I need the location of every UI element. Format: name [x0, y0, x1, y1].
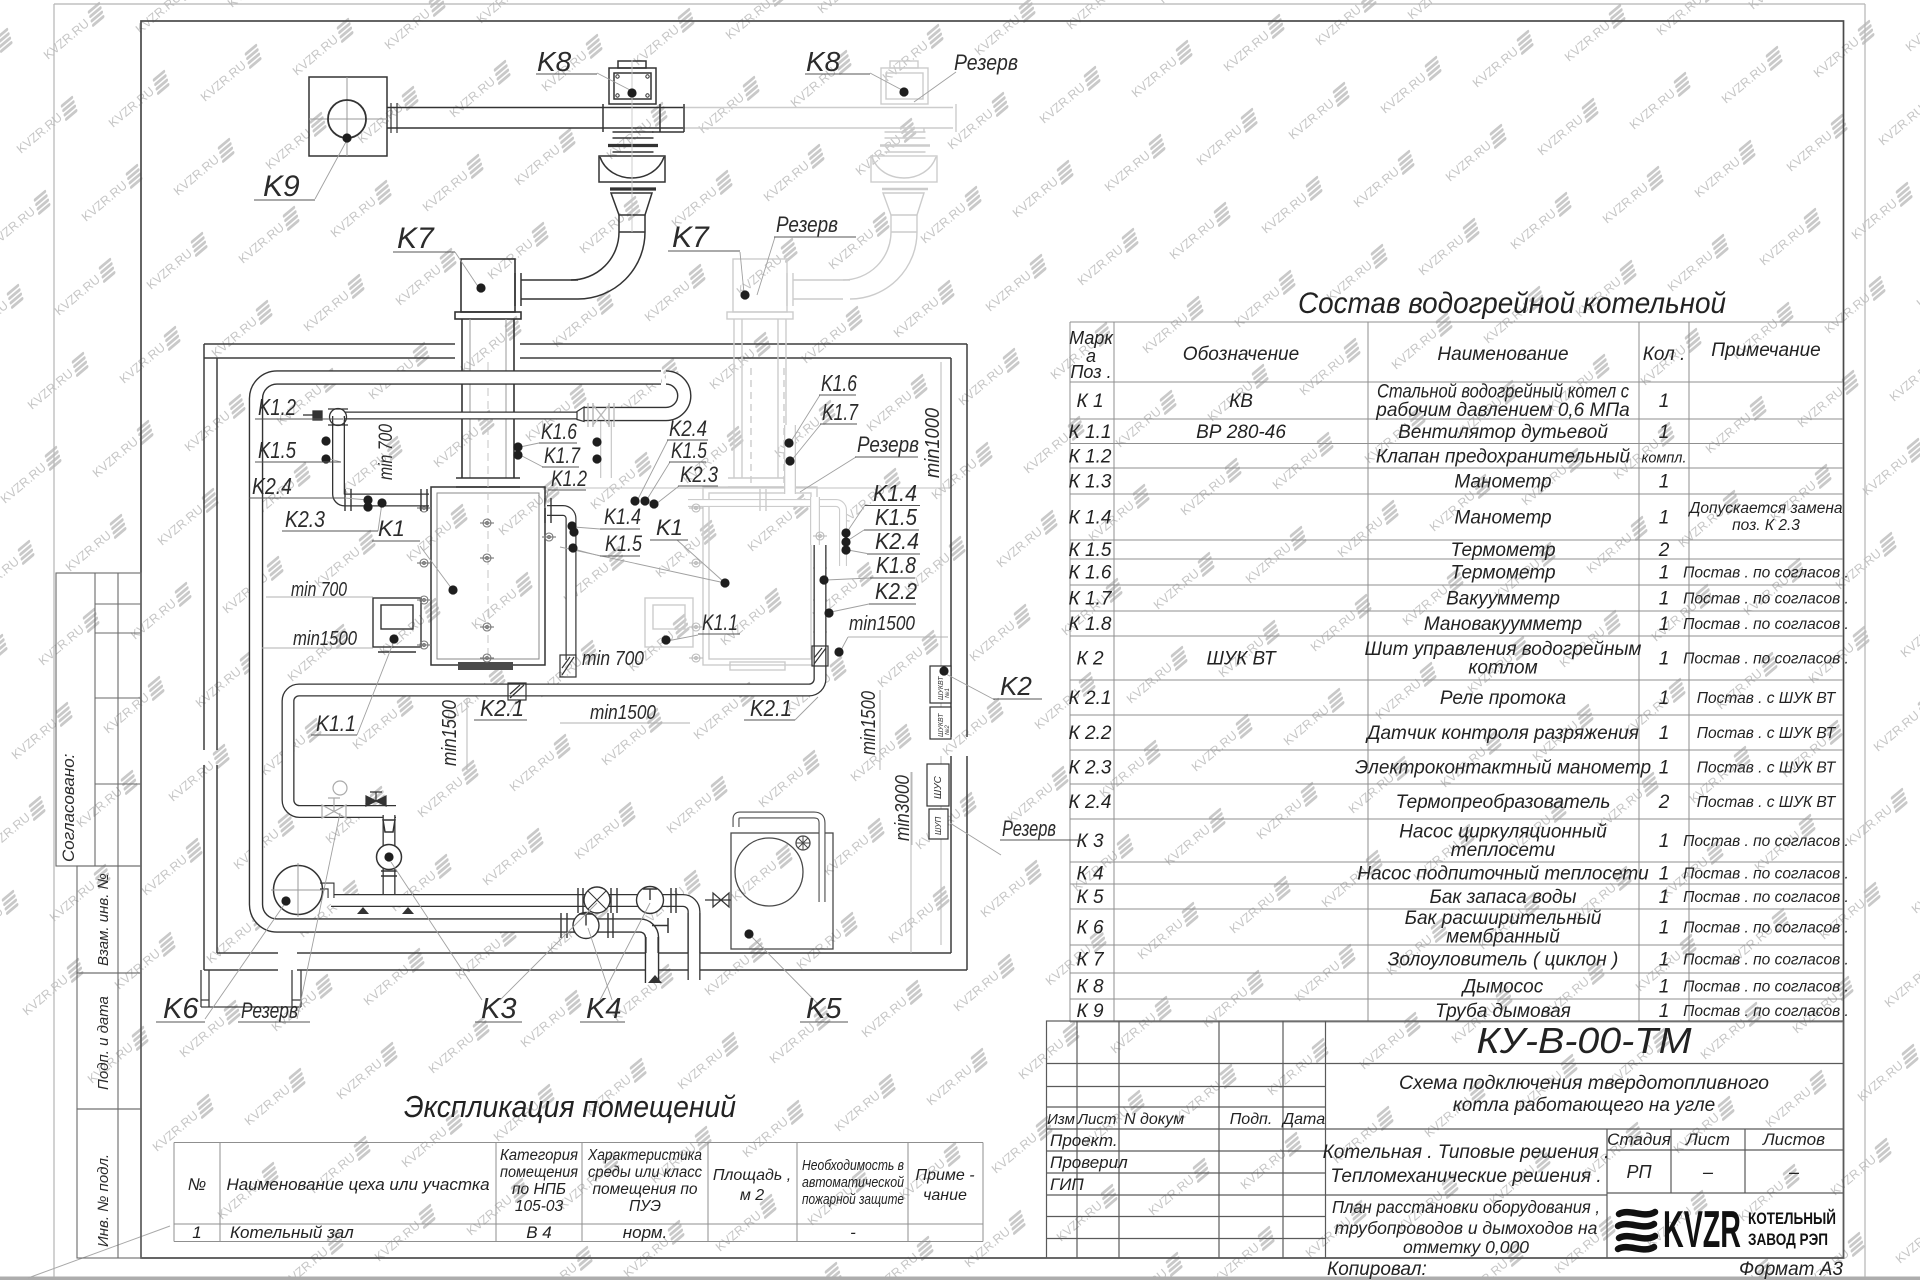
svg-text:В 4: В 4 — [526, 1223, 552, 1242]
svg-text:К 1.5: К 1.5 — [1069, 540, 1112, 561]
svg-text:K1.6: K1.6 — [821, 370, 857, 396]
svg-text:min3000: min3000 — [892, 775, 914, 841]
svg-text:К 2: К 2 — [1076, 649, 1103, 670]
svg-text:Дата: Дата — [1281, 1111, 1325, 1128]
svg-text:КУ-В-00-ТМ: КУ-В-00-ТМ — [1477, 1020, 1692, 1061]
svg-text:Проверил: Проверил — [1050, 1153, 1128, 1172]
svg-text:компл.: компл. — [1641, 450, 1686, 466]
svg-text:К 2.2: К 2.2 — [1069, 723, 1112, 744]
svg-text:K2: K2 — [1000, 671, 1032, 701]
svg-text:K1.5: K1.5 — [671, 438, 708, 463]
svg-text:Труба дымовая: Труба дымовая — [1435, 1001, 1571, 1022]
svg-text:2: 2 — [1658, 540, 1670, 561]
svg-text:min1500: min1500 — [590, 702, 656, 724]
svg-text:Резерв: Резерв — [1002, 816, 1056, 841]
svg-text:Наименование: Наименование — [1437, 344, 1568, 365]
svg-text:1: 1 — [1659, 422, 1670, 443]
svg-text:1: 1 — [1659, 758, 1670, 779]
svg-text:К 4: К 4 — [1076, 864, 1103, 885]
svg-text:1: 1 — [1659, 977, 1670, 998]
svg-text:1: 1 — [1659, 472, 1670, 493]
svg-text:Электроконтактный манометр: Электроконтактный манометр — [1355, 758, 1651, 779]
svg-text:пожарной защите: пожарной защите — [802, 1191, 904, 1208]
svg-text:K2.3: K2.3 — [680, 462, 719, 487]
svg-text:№: № — [188, 1175, 206, 1194]
svg-text:Постав . по согласов .: Постав . по согласов . — [1683, 920, 1849, 937]
svg-text:ШУК ВТ: ШУК ВТ — [1206, 649, 1277, 670]
svg-text:min1500: min1500 — [849, 613, 915, 635]
svg-text:Золоуловитель ( циклон ): Золоуловитель ( циклон ) — [1388, 950, 1619, 971]
svg-text:min 700: min 700 — [582, 648, 644, 670]
svg-text:Подп.: Подп. — [1230, 1111, 1273, 1128]
svg-text:теплосети: теплосети — [1451, 840, 1556, 861]
svg-text:1: 1 — [1659, 589, 1670, 610]
svg-text:норм.: норм. — [623, 1223, 667, 1242]
svg-text:К 1.3: К 1.3 — [1069, 472, 1112, 493]
svg-text:К 1.4: К 1.4 — [1069, 508, 1112, 529]
svg-text:чание: чание — [923, 1187, 967, 1204]
svg-text:Термопреобразователь: Термопреобразователь — [1396, 792, 1611, 813]
svg-text:K1.4: K1.4 — [604, 504, 641, 529]
svg-text:K2.4: K2.4 — [252, 473, 292, 499]
svg-text:–: – — [1702, 1162, 1714, 1182]
svg-text:Резерв: Резерв — [857, 432, 919, 457]
svg-text:K1: K1 — [656, 515, 683, 540]
svg-text:–: – — [1788, 1162, 1800, 1182]
svg-text:К 8: К 8 — [1076, 977, 1103, 998]
svg-text:Инв. № подл.: Инв. № подл. — [95, 1154, 112, 1247]
svg-text:1: 1 — [1659, 649, 1670, 670]
svg-text:Постав . по согласов .: Постав . по согласов . — [1683, 866, 1849, 883]
svg-text:1: 1 — [1659, 864, 1670, 885]
svg-text:отметку 0,000: отметку 0,000 — [1403, 1237, 1529, 1257]
svg-text:Тепломеханические решения .: Тепломеханические решения . — [1330, 1166, 1601, 1187]
svg-text:Бак запаса воды: Бак запаса воды — [1429, 887, 1576, 908]
svg-text:Постав . по согласов .: Постав . по согласов . — [1683, 651, 1849, 668]
svg-text:КВ: КВ — [1229, 391, 1253, 412]
svg-text:K1.6: K1.6 — [541, 419, 578, 444]
svg-text:Необходимость в: Необходимость в — [802, 1157, 904, 1174]
svg-text:План расстановки оборудования: План расстановки оборудования , — [1332, 1197, 1600, 1217]
svg-text:Экспликация помещений: Экспликация помещений — [404, 1089, 736, 1124]
svg-text:Примечание: Примечание — [1711, 340, 1820, 361]
svg-text:К 1.2: К 1.2 — [1069, 446, 1112, 467]
svg-text:по НПБ: по НПБ — [512, 1181, 566, 1198]
svg-text:Датчик контроля разряжения: Датчик контроля разряжения — [1365, 723, 1639, 744]
svg-text:105-03: 105-03 — [515, 1198, 564, 1215]
svg-text:Реле протока: Реле протока — [1440, 688, 1566, 709]
svg-text:Приме -: Приме - — [915, 1167, 974, 1184]
svg-text:K4: K4 — [586, 993, 621, 1025]
svg-text:котлом: котлом — [1468, 658, 1537, 679]
svg-text:K1.5: K1.5 — [605, 531, 643, 556]
svg-text:трубопроводов и дымоходов на: трубопроводов и дымоходов на — [1335, 1218, 1598, 1238]
svg-text:1: 1 — [1659, 508, 1670, 529]
svg-text:К 7: К 7 — [1076, 950, 1104, 971]
svg-text:Изм: Изм — [1047, 1111, 1075, 1128]
svg-text:1: 1 — [1659, 918, 1670, 939]
svg-text:К 1.8: К 1.8 — [1069, 614, 1112, 635]
svg-text:Постав . с ШУК ВТ: Постав . с ШУК ВТ — [1697, 690, 1837, 707]
svg-text:Допускается замена: Допускается замена — [1687, 500, 1842, 517]
svg-text:K1.7: K1.7 — [544, 443, 581, 468]
svg-text:1: 1 — [192, 1223, 201, 1242]
svg-text:помещения: помещения — [500, 1164, 578, 1181]
svg-text:Обозначение: Обозначение — [1183, 344, 1299, 365]
svg-text:Мановакуумметр: Мановакуумметр — [1424, 614, 1582, 635]
svg-text:K1.8: K1.8 — [876, 552, 916, 578]
svg-text:K1.1: K1.1 — [316, 711, 356, 736]
svg-text:min1500: min1500 — [439, 700, 461, 766]
svg-text:Проект.: Проект. — [1050, 1131, 1118, 1150]
svg-text:1: 1 — [1659, 950, 1670, 971]
svg-text:Постав . с ШУК ВТ: Постав . с ШУК ВТ — [1697, 760, 1837, 777]
svg-text:К 2.1: К 2.1 — [1069, 688, 1112, 709]
svg-text:К 5: К 5 — [1076, 887, 1103, 908]
svg-text:Лист: Лист — [1077, 1111, 1117, 1128]
svg-text:1: 1 — [1659, 1001, 1670, 1022]
svg-text:Постав . по согласов .: Постав . по согласов . — [1683, 952, 1849, 969]
svg-text:Резерв: Резерв — [954, 50, 1018, 75]
svg-text:Насос подпиточный теплосети: Насос подпиточный теплосети — [1357, 864, 1649, 885]
svg-text:№2: №2 — [944, 725, 951, 735]
svg-text:Постав . по согласов .: Постав . по согласов . — [1683, 1003, 1849, 1020]
svg-text:Постав . по согласов .: Постав . по согласов . — [1683, 979, 1849, 996]
svg-text:K1.5: K1.5 — [875, 504, 917, 530]
svg-text:Состав водогрейной котельной: Состав водогрейной котельной — [1298, 287, 1726, 320]
svg-text:K1.2: K1.2 — [258, 394, 296, 420]
svg-text:K1.2: K1.2 — [551, 466, 587, 491]
svg-text:Стадия: Стадия — [1607, 1130, 1671, 1149]
svg-text:K2.3: K2.3 — [285, 506, 325, 532]
svg-text:K8: K8 — [806, 46, 841, 77]
svg-text:Клапан предохранительный: Клапан предохранительный — [1376, 446, 1631, 467]
svg-text:K1.1: K1.1 — [702, 610, 738, 635]
svg-text:Кол .: Кол . — [1643, 344, 1686, 365]
svg-text:мембранный: мембранный — [1446, 927, 1560, 948]
svg-text:Манометр: Манометр — [1454, 472, 1551, 493]
svg-text:Характеристика: Характеристика — [587, 1147, 702, 1164]
svg-text:№1: №1 — [944, 688, 951, 698]
svg-text:K8: K8 — [537, 46, 572, 77]
svg-text:помещения по: помещения по — [592, 1181, 697, 1198]
svg-text:min 700: min 700 — [376, 424, 397, 480]
svg-text:Постав . по согласов .: Постав . по согласов . — [1683, 616, 1849, 633]
svg-text:Наименование цеха или участка: Наименование цеха или участка — [226, 1175, 489, 1194]
svg-text:К 6: К 6 — [1076, 918, 1103, 939]
svg-text:Вентилятор дутьевой: Вентилятор дутьевой — [1398, 422, 1608, 443]
svg-text:Вакуумметр: Вакуумметр — [1446, 589, 1560, 610]
svg-text:К 1.7: К 1.7 — [1069, 589, 1113, 610]
svg-text:K7: K7 — [397, 222, 435, 255]
svg-text:ШУП: ШУП — [934, 817, 943, 835]
svg-text:K6: K6 — [163, 993, 199, 1025]
svg-text:-: - — [850, 1223, 856, 1242]
svg-text:Постав . по согласов .: Постав . по согласов . — [1683, 591, 1849, 608]
svg-text:Постав . по согласов .: Постав . по согласов . — [1683, 833, 1849, 850]
svg-text:Марк: Марк — [1069, 328, 1114, 348]
svg-text:Манометр: Манометр — [1454, 508, 1551, 529]
svg-text:К 3: К 3 — [1076, 831, 1103, 852]
svg-text:min1500: min1500 — [293, 628, 357, 650]
svg-text:Котельный зал: Котельный зал — [230, 1223, 354, 1242]
svg-text:1: 1 — [1659, 887, 1670, 908]
svg-text:Копировал:: Копировал: — [1327, 1259, 1427, 1280]
svg-text:Схема подключения твердотоплив: Схема подключения твердотопливного — [1399, 1073, 1769, 1094]
svg-text:поз. К 2.3: поз. К 2.3 — [1732, 517, 1800, 534]
svg-text:Категория: Категория — [500, 1147, 578, 1164]
svg-text:Котельная . Типовые решения .: Котельная . Типовые решения . — [1323, 1142, 1610, 1163]
svg-text:KVZR: KVZR — [1663, 1201, 1741, 1259]
svg-text:min 700: min 700 — [291, 579, 347, 601]
svg-text:ВР 280-46: ВР 280-46 — [1196, 422, 1286, 443]
svg-text:K5: K5 — [806, 993, 842, 1025]
svg-text:К 2.3: К 2.3 — [1069, 758, 1112, 779]
svg-text:Дымосос: Дымосос — [1461, 977, 1544, 998]
svg-text:Резерв: Резерв — [776, 212, 838, 237]
svg-text:Формат А3: Формат А3 — [1739, 1259, 1843, 1280]
svg-text:1: 1 — [1659, 563, 1670, 584]
svg-text:min1500: min1500 — [858, 691, 880, 755]
svg-text:1: 1 — [1659, 614, 1670, 635]
svg-text:К 9: К 9 — [1076, 1001, 1103, 1022]
svg-text:Поз .: Поз . — [1070, 362, 1111, 382]
svg-text:K9: K9 — [263, 170, 300, 203]
svg-text:K1: K1 — [378, 516, 405, 541]
svg-text:Постав . с ШУК ВТ: Постав . с ШУК ВТ — [1697, 725, 1837, 742]
svg-text:Термометр: Термометр — [1450, 563, 1555, 584]
svg-text:РП: РП — [1626, 1162, 1652, 1182]
svg-text:Подп. и дата: Подп. и дата — [95, 996, 112, 1090]
svg-text:ШУКВТ: ШУКВТ — [938, 676, 945, 700]
svg-text:2: 2 — [1658, 792, 1670, 813]
svg-text:ШУКВТ: ШУКВТ — [938, 713, 945, 737]
svg-text:K2.4: K2.4 — [875, 528, 919, 554]
svg-text:Термометр: Термометр — [1450, 540, 1555, 561]
svg-text:автоматической: автоматической — [802, 1174, 905, 1191]
svg-text:Согласовано:: Согласовано: — [59, 753, 78, 862]
svg-text:ЗАВОД РЭП: ЗАВОД РЭП — [1748, 1230, 1828, 1249]
svg-text:K2.2: K2.2 — [875, 578, 917, 604]
svg-text:N докум: N докум — [1124, 1111, 1184, 1128]
svg-text:K3: K3 — [481, 993, 516, 1025]
svg-text:котла работающего на угле: котла работающего на угле — [1453, 1095, 1715, 1116]
svg-text:КОТЕЛЬНЫЙ: КОТЕЛЬНЫЙ — [1748, 1209, 1836, 1228]
svg-text:К 1.1: К 1.1 — [1069, 422, 1112, 443]
svg-text:K7: K7 — [672, 221, 710, 254]
svg-text:K1.4: K1.4 — [873, 480, 917, 506]
svg-text:К 1.6: К 1.6 — [1069, 563, 1112, 584]
svg-text:Лист: Лист — [1685, 1130, 1730, 1149]
svg-text:рабочим давлением 0,6 МПа: рабочим давлением 0,6 МПа — [1375, 400, 1629, 421]
svg-text:K2.1: K2.1 — [750, 695, 792, 721]
svg-text:К 1: К 1 — [1076, 391, 1103, 412]
svg-text:1: 1 — [1659, 723, 1670, 744]
svg-text:м 2: м 2 — [740, 1187, 764, 1204]
svg-text:ГИП: ГИП — [1050, 1175, 1084, 1194]
svg-text:Постав . с ШУК ВТ: Постав . с ШУК ВТ — [1697, 794, 1837, 811]
svg-text:min1000: min1000 — [922, 408, 944, 478]
svg-text:ПУЭ: ПУЭ — [629, 1198, 661, 1215]
svg-text:Постав . по согласов .: Постав . по согласов . — [1683, 889, 1849, 906]
svg-text:K1.7: K1.7 — [822, 399, 859, 425]
svg-text:1: 1 — [1659, 688, 1670, 709]
svg-text:1: 1 — [1659, 391, 1670, 412]
svg-text:K2.1: K2.1 — [480, 695, 524, 721]
svg-text:1: 1 — [1659, 831, 1670, 852]
svg-text:Взам. инв. №: Взам. инв. № — [95, 873, 112, 966]
svg-text:Листов: Листов — [1762, 1130, 1825, 1149]
svg-text:К 2.4: К 2.4 — [1069, 792, 1112, 813]
svg-text:Площадь ,: Площадь , — [713, 1167, 791, 1184]
svg-text:среды или класс: среды или класс — [588, 1164, 702, 1181]
svg-text:Постав . по согласов .: Постав . по согласов . — [1683, 565, 1849, 582]
svg-text:Резерв: Резерв — [241, 998, 298, 1023]
svg-text:ШУС: ШУС — [933, 775, 944, 799]
svg-text:K1.5: K1.5 — [258, 437, 296, 463]
